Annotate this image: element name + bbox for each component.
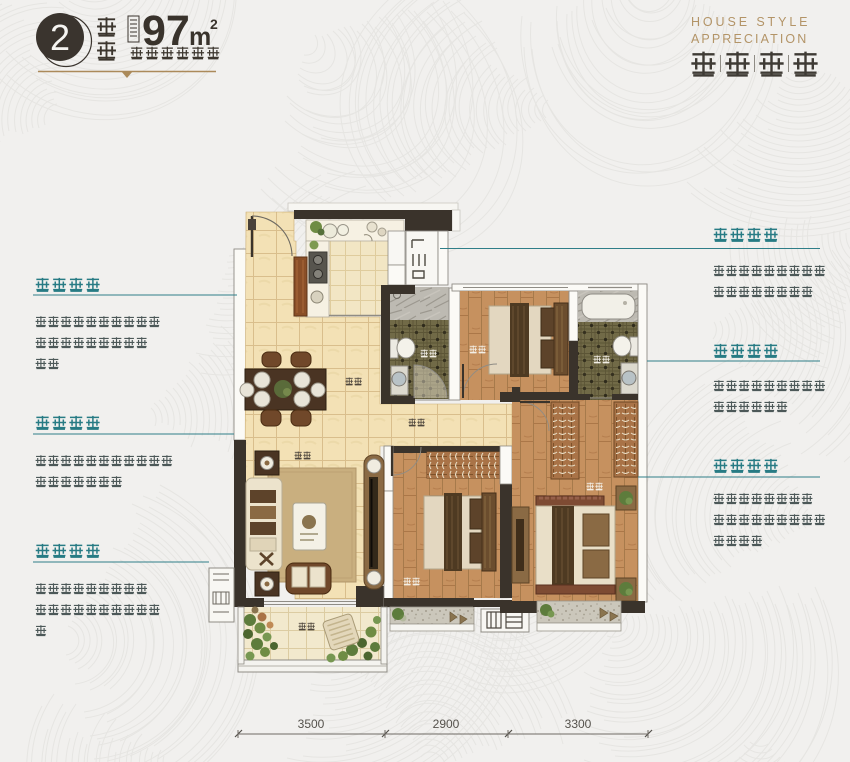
svg-text:m: m (189, 23, 211, 51)
svg-text:APPRECIATION: APPRECIATION (691, 32, 808, 46)
svg-text:2: 2 (50, 17, 70, 58)
svg-text:3500: 3500 (298, 717, 325, 731)
svg-text:HOUSE STYLE: HOUSE STYLE (691, 15, 810, 29)
svg-text:2: 2 (210, 16, 218, 32)
svg-text:2900: 2900 (433, 717, 460, 731)
svg-text:3300: 3300 (565, 717, 592, 731)
